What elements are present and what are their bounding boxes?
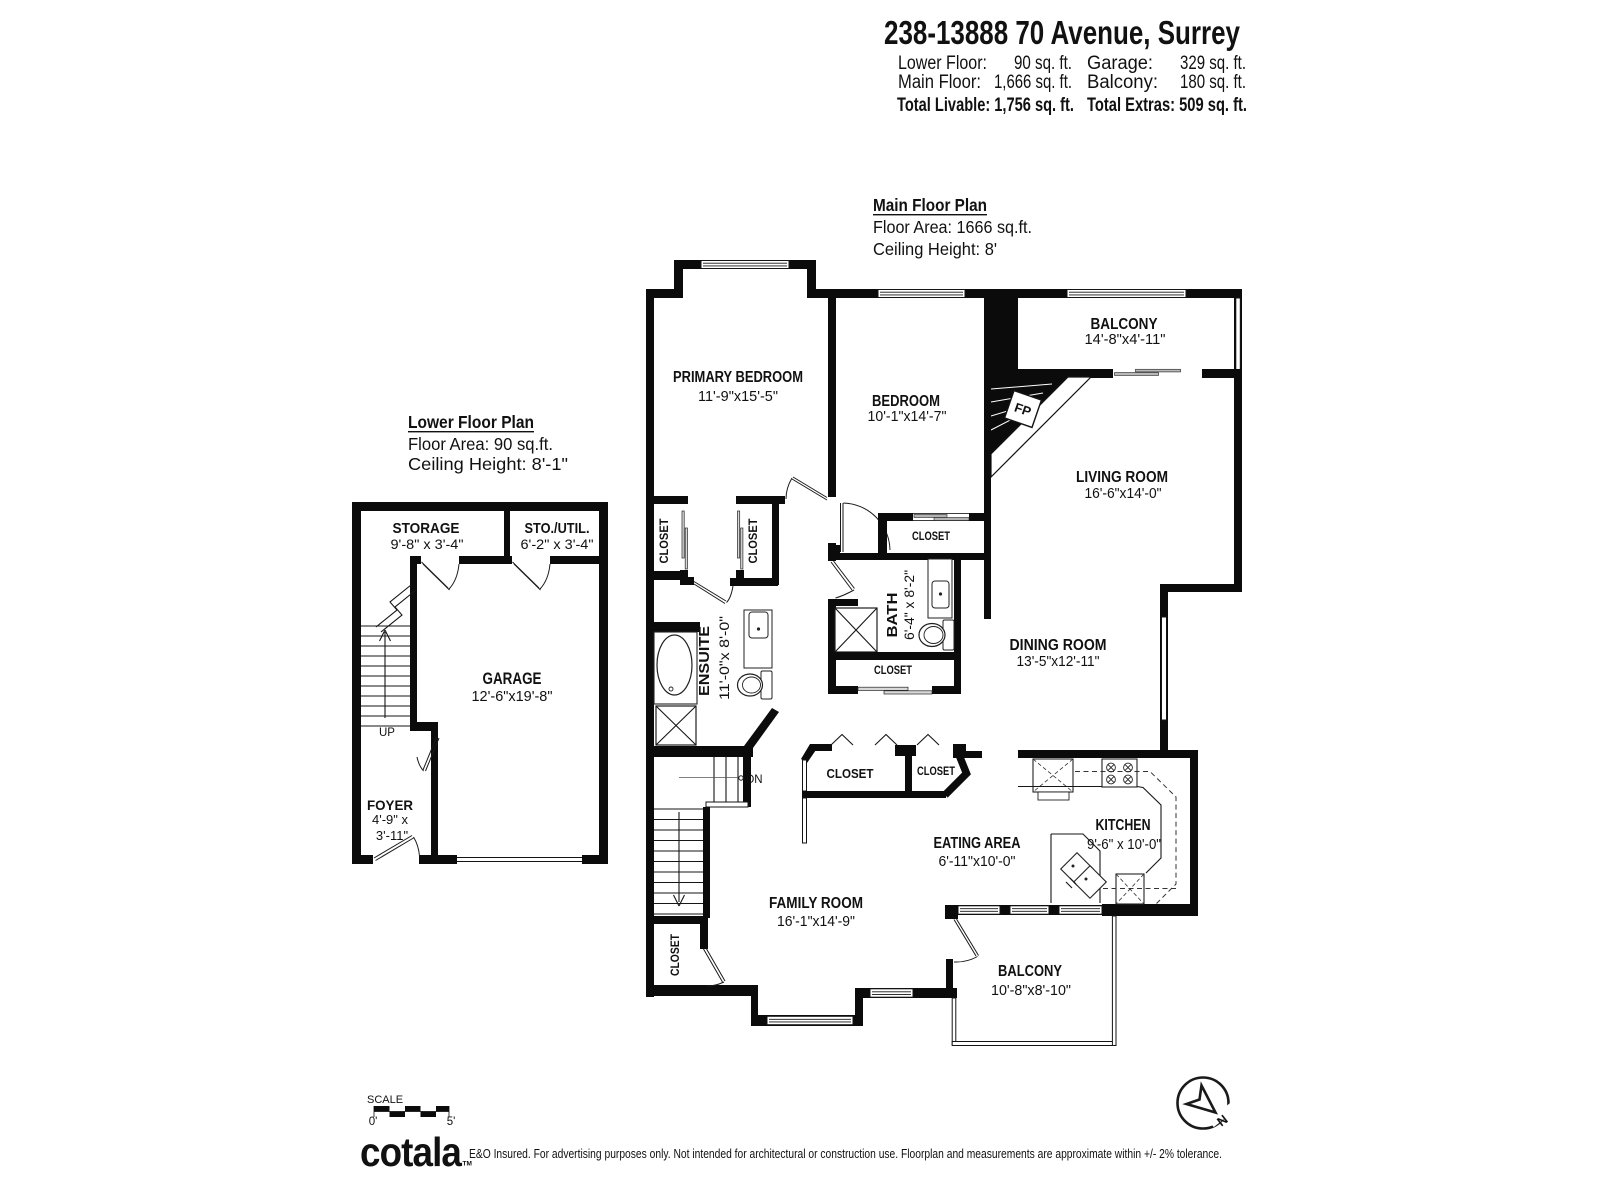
svg-text:LIVING ROOM: LIVING ROOM	[1076, 469, 1168, 486]
svg-text:E&O Insured. For advertising p: E&O Insured. For advertising purposes on…	[469, 1146, 1222, 1161]
svg-text:1,666 sq. ft.: 1,666 sq. ft.	[994, 72, 1072, 93]
svg-text:4'-9" x: 4'-9" x	[372, 812, 408, 827]
svg-text:FAMILY ROOM: FAMILY ROOM	[769, 895, 863, 912]
svg-text:Floor Area: 90 sq.ft.: Floor Area: 90 sq.ft.	[408, 434, 553, 454]
svg-text:329 sq. ft.: 329 sq. ft.	[1180, 53, 1246, 74]
svg-text:BALCONY: BALCONY	[1091, 316, 1158, 333]
svg-text:90 sq. ft.: 90 sq. ft.	[1014, 53, 1072, 74]
svg-text:UP: UP	[379, 727, 395, 739]
svg-text:16'-1"x14'-9": 16'-1"x14'-9"	[777, 914, 855, 930]
svg-text:Ceiling Height: 8': Ceiling Height: 8'	[873, 239, 997, 259]
svg-text:6'-2" x 3'-4": 6'-2" x 3'-4"	[521, 537, 594, 552]
svg-text:12'-6"x19'-8": 12'-6"x19'-8"	[472, 689, 553, 705]
svg-text:Main Floor:: Main Floor:	[898, 72, 981, 93]
svg-text:CLOSET: CLOSET	[874, 665, 912, 677]
svg-text:6'-11"x10'-0": 6'-11"x10'-0"	[939, 854, 1016, 870]
svg-text:KITCHEN: KITCHEN	[1096, 817, 1151, 834]
svg-text:10'-1"x14'-7": 10'-1"x14'-7"	[868, 409, 947, 425]
svg-text:5': 5'	[447, 1116, 456, 1128]
svg-text:Balcony:: Balcony:	[1087, 72, 1158, 93]
svg-text:9'-8" x 3'-4": 9'-8" x 3'-4"	[391, 537, 464, 552]
svg-text:Lower Floor Plan: Lower Floor Plan	[408, 412, 534, 432]
svg-text:180 sq. ft.: 180 sq. ft.	[1180, 72, 1246, 93]
svg-text:3'-11": 3'-11"	[376, 828, 409, 843]
svg-text:11'-0"x 8'-0": 11'-0"x 8'-0"	[717, 616, 732, 700]
svg-text:GARAGE: GARAGE	[483, 670, 542, 688]
svg-text:14'-8"x4'-11": 14'-8"x4'-11"	[1085, 332, 1166, 348]
svg-text:SCALE: SCALE	[367, 1094, 403, 1106]
svg-text:FOYER: FOYER	[367, 797, 413, 813]
svg-text:CLOSET: CLOSET	[827, 767, 874, 781]
svg-text:CLOSET: CLOSET	[917, 766, 955, 778]
svg-text:0': 0'	[369, 1116, 378, 1128]
svg-text:13'-5"x12'-11": 13'-5"x12'-11"	[1017, 654, 1100, 670]
svg-text:6'-4" x 8'-2": 6'-4" x 8'-2"	[902, 570, 917, 640]
svg-text:TM: TM	[463, 1161, 472, 1168]
svg-text:10'-8"x8'-10": 10'-8"x8'-10"	[991, 983, 1071, 999]
svg-text:CLOSET: CLOSET	[912, 531, 950, 543]
svg-text:ENSUITE: ENSUITE	[696, 626, 713, 696]
svg-text:DN: DN	[746, 774, 763, 786]
svg-text:9'-6" x 10'-0": 9'-6" x 10'-0"	[1087, 837, 1161, 853]
svg-text:Total Extras: 509 sq. ft.: Total Extras: 509 sq. ft.	[1087, 95, 1247, 116]
svg-text:STO./UTIL.: STO./UTIL.	[525, 520, 590, 537]
svg-text:Lower Floor:: Lower Floor:	[898, 53, 987, 74]
svg-text:Total Livable: 1,756 sq. ft.: Total Livable: 1,756 sq. ft.	[897, 95, 1074, 116]
svg-text:CLOSET: CLOSET	[659, 519, 671, 564]
svg-text:CLOSET: CLOSET	[670, 934, 682, 976]
svg-text:Main Floor Plan: Main Floor Plan	[873, 195, 987, 215]
svg-text:Ceiling Height: 8'-1": Ceiling Height: 8'-1"	[408, 454, 568, 474]
svg-text:16'-6"x14'-0": 16'-6"x14'-0"	[1085, 486, 1162, 502]
svg-text:Garage:: Garage:	[1087, 53, 1153, 74]
svg-text:Floor Area: 1666 sq.ft.: Floor Area: 1666 sq.ft.	[873, 217, 1032, 237]
svg-text:BALCONY: BALCONY	[998, 963, 1062, 980]
svg-text:BATH: BATH	[884, 593, 901, 638]
svg-text:EATING AREA: EATING AREA	[934, 835, 1021, 852]
svg-text:cotala: cotala	[360, 1129, 463, 1175]
svg-text:PRIMARY BEDROOM: PRIMARY BEDROOM	[673, 369, 803, 386]
svg-text:DINING ROOM: DINING ROOM	[1010, 637, 1107, 654]
svg-text:CLOSET: CLOSET	[748, 519, 760, 564]
svg-text:STORAGE: STORAGE	[393, 520, 460, 537]
svg-text:238-13888 70 Avenue, Surrey: 238-13888 70 Avenue, Surrey	[884, 14, 1241, 51]
svg-text:BEDROOM: BEDROOM	[872, 393, 940, 410]
svg-text:11'-9"x15'-5": 11'-9"x15'-5"	[698, 389, 778, 405]
